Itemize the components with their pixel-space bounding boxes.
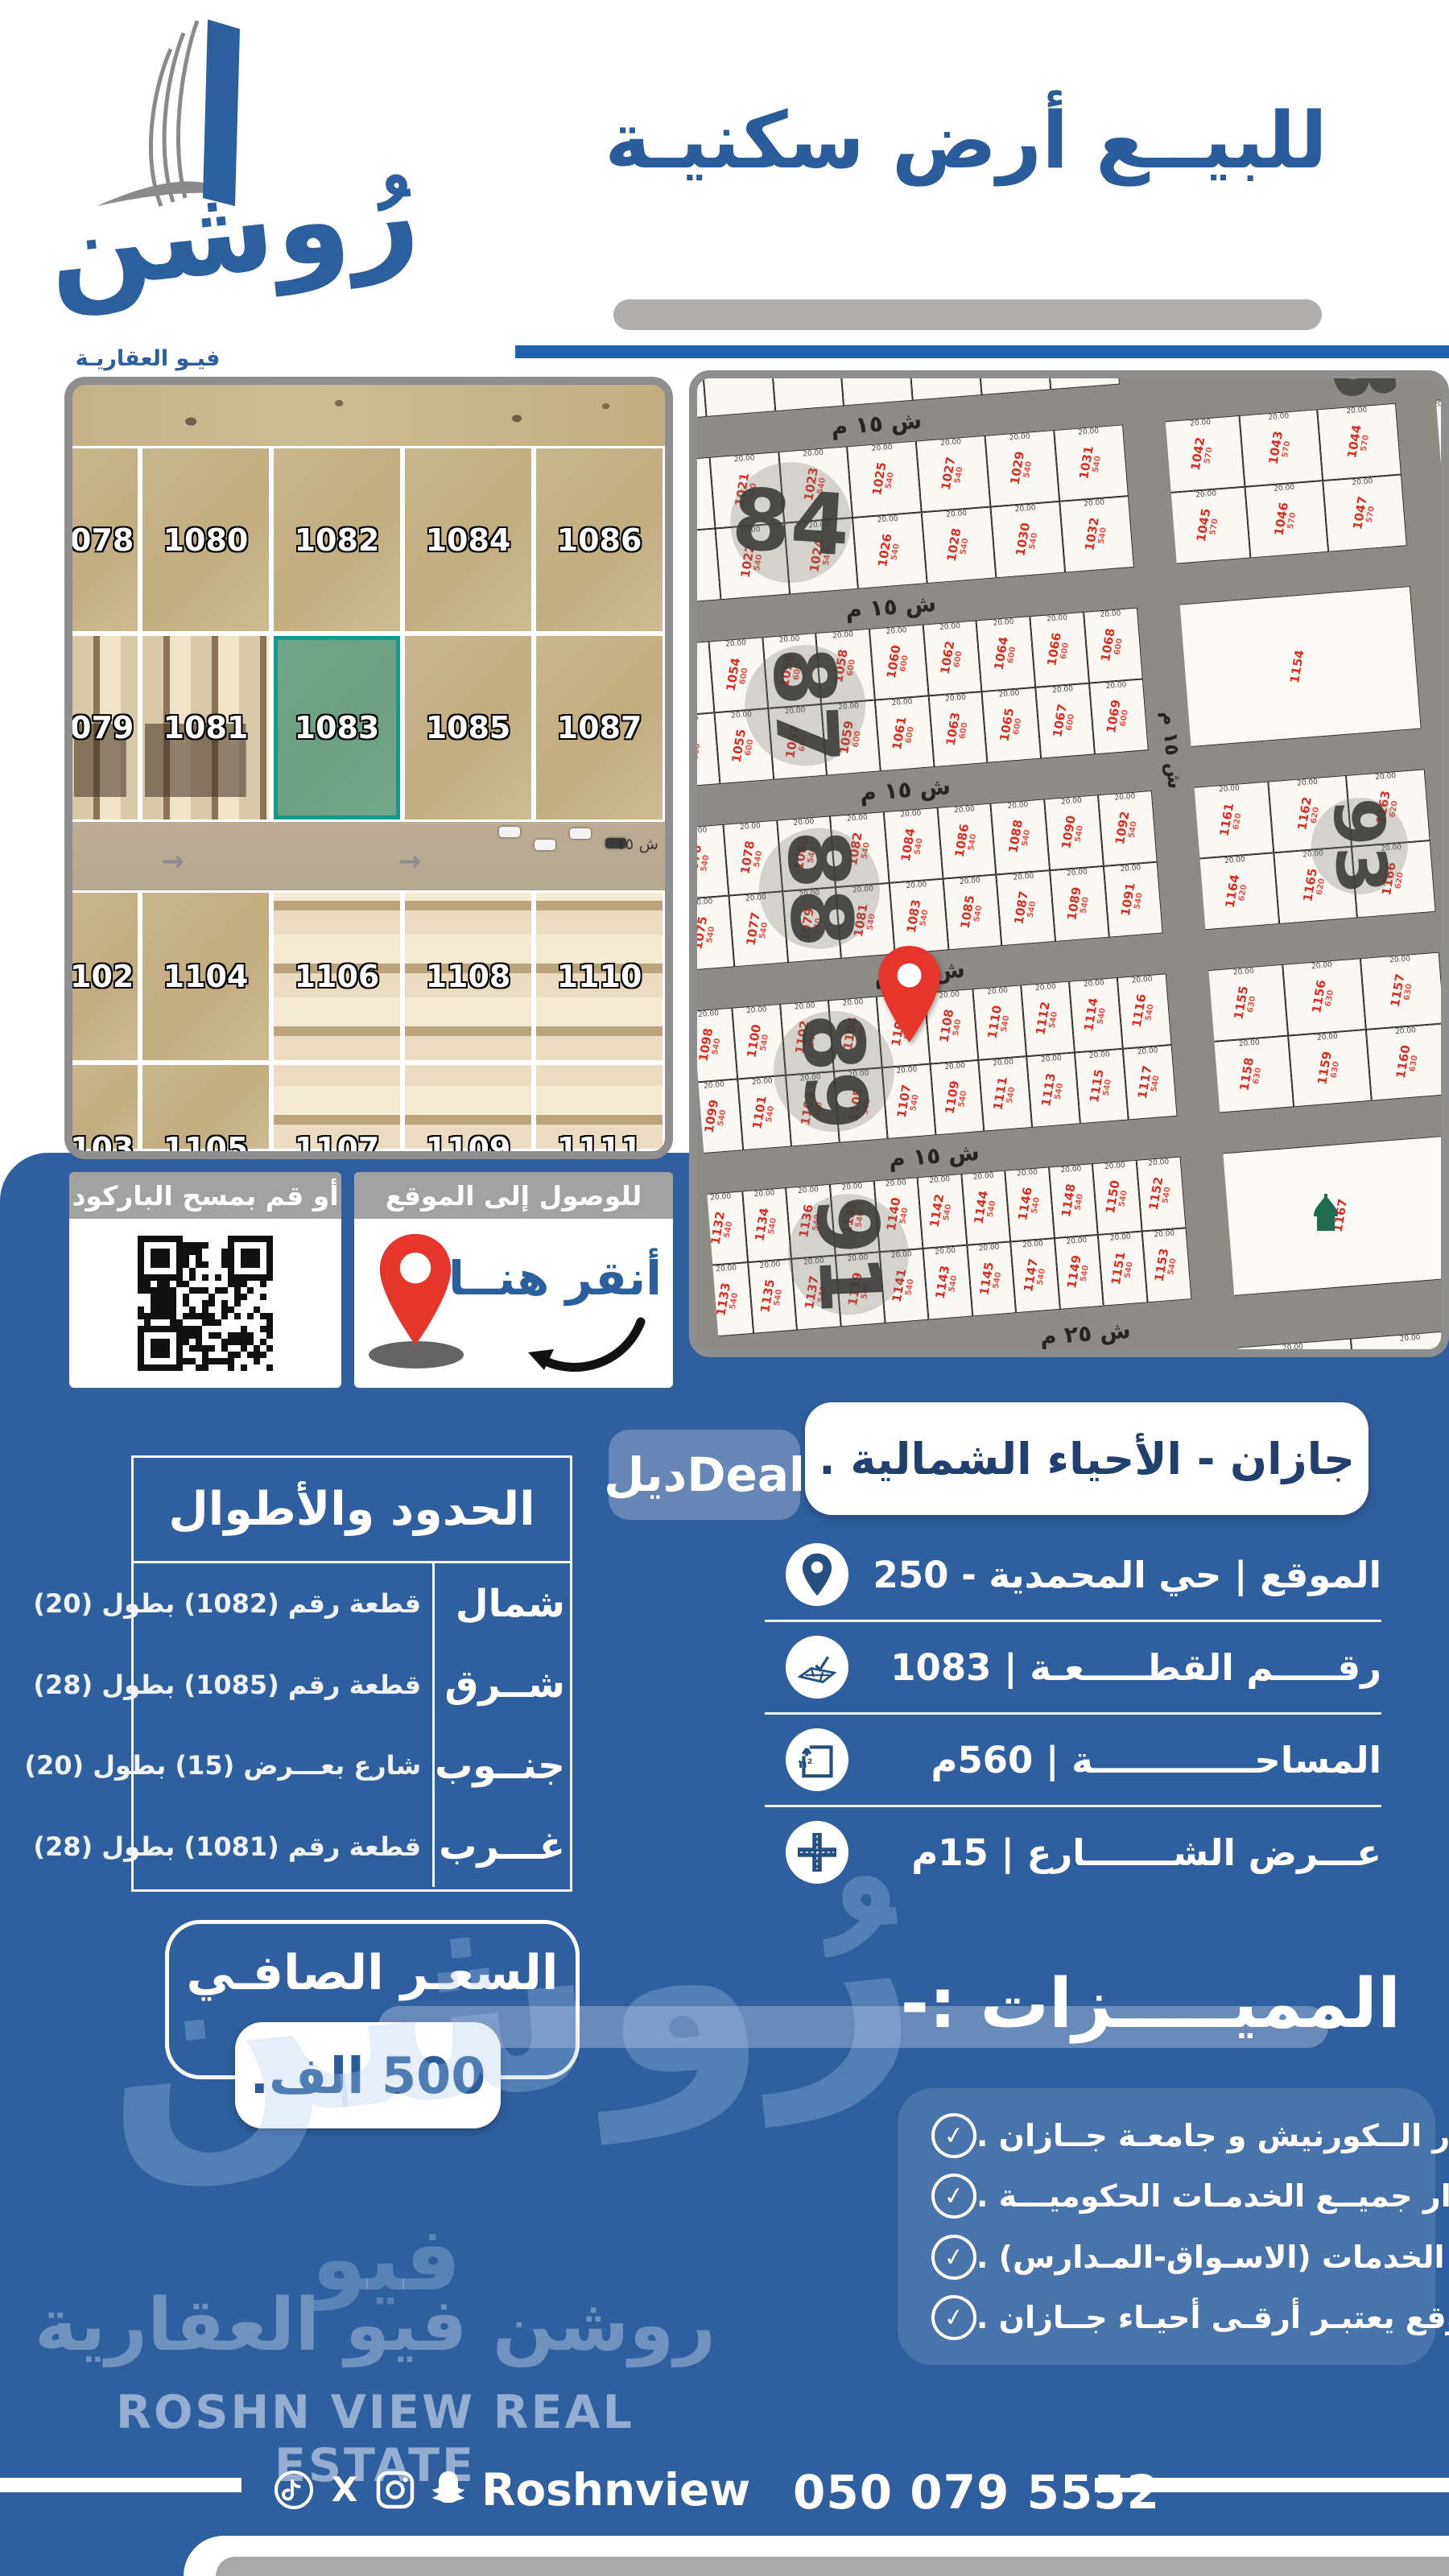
plat-parcel-1030: 20.001030540 (991, 502, 1065, 578)
plat-parcel-1147: 20.001147540 (1011, 1238, 1060, 1313)
plat-parcel-1068: 20.001068600 (1084, 607, 1142, 683)
plat-parcel-1029: 20.001029540 (985, 430, 1059, 506)
parcel-number: 1104 (142, 959, 269, 994)
snapchat-icon[interactable] (428, 2469, 469, 2511)
plat-parcel-1144: 20.001144540 (961, 1170, 1010, 1245)
satellite-parcel-1082: 1082 (271, 446, 402, 634)
satellite-parcel-1086: 1086 (534, 446, 665, 634)
parcel-number: 1082 (274, 522, 400, 558)
plat-parcel-1061: 20.001061600 (875, 696, 934, 771)
plat-parcel-1113: 20.001113540 (1027, 1052, 1081, 1127)
feature-item: ✓الموقع يعتبـر أرقـى أحيـاء جــازان . (919, 2295, 1414, 2340)
social-handle[interactable]: Roshnview (481, 2464, 750, 2516)
logo-subtitle: فيـو العقاريـة (32, 346, 263, 371)
location-card: للوصول إلى الموقع أنقر هنــا (354, 1172, 673, 1388)
satellite-parcel-1107: 1107 (271, 1063, 402, 1150)
features-title: المميـــــزات :- (724, 1964, 1401, 2044)
satellite-parcel-1083: 1083 (271, 634, 402, 821)
plat-parcel-1145: 20.001145540 (967, 1241, 1016, 1316)
detail-row: الموقع | حي المحمدية - 250 (765, 1529, 1381, 1620)
plat-parcel-1157: 20.001157630 (1360, 952, 1444, 1029)
satellite-parcel-1102: 1102 (72, 890, 140, 1063)
parcel-number: 1087 (536, 710, 663, 745)
detail-label: رقـــــم القطـــــعـة | 1083 (848, 1646, 1381, 1689)
brand-logo: رُوشن فيـو العقاريـة (32, 5, 362, 379)
plat-parcel-1089: 20.001089540 (1051, 866, 1109, 942)
car (570, 828, 591, 839)
plat-parcel-1044: 20.001044570 (1318, 402, 1402, 480)
svg-text:m²: m² (799, 1756, 812, 1771)
plat-parcel-1164: 20.001164620 (1195, 852, 1279, 930)
plat-parcel-1110: 20.001110540 (973, 985, 1027, 1059)
parcel-number: 1108 (405, 959, 531, 994)
net-price-label: السعـر الصافـي (169, 1945, 576, 2001)
footer-line-left (0, 2478, 242, 2492)
page-title: للبيــع أرض سكنيـة (588, 95, 1344, 186)
plat-parcel-1066: 20.001066600 (1030, 612, 1089, 687)
boundary-direction: شمال (435, 1563, 570, 1645)
parcel-number: 1106 (274, 959, 400, 994)
plat-parcel-1043: 20.001043570 (1240, 409, 1323, 486)
satellite-parcel-1105: 1105 (140, 1063, 271, 1150)
satellite-parcel-1111: 1111 (534, 1063, 665, 1150)
street-label: ش ٢٥ م (1039, 1316, 1132, 1350)
plat-parcel-1032: 20.001032540 (1059, 496, 1133, 572)
parcel-number: 1079 (64, 710, 138, 745)
plat-parcel-1158: 20.001158630 (1210, 1035, 1294, 1113)
road-arrow-icon: → (398, 845, 422, 877)
road-arrow-icon: → (161, 845, 184, 877)
street-label: ش ١٥ م (830, 407, 923, 440)
plat-parcel-1356: 20.001356475 (1155, 1351, 1205, 1357)
plat-parcel-1065: 20.001065600 (982, 687, 1041, 763)
plat-parcel-1146: 20.001146540 (1005, 1166, 1055, 1241)
plat-parcel-1087: 20.001087540 (997, 870, 1055, 946)
check-icon: ✓ (928, 2292, 979, 2343)
plat-parcel-1134: 20.001134540 (742, 1187, 791, 1262)
boundary-direction: جنــوب (435, 1725, 570, 1806)
title-underline-bar (613, 299, 1322, 330)
right-section: 20.00116162020.00116262020.00116362020.0… (1190, 769, 1435, 930)
parcel-number: 1080 (142, 522, 269, 558)
plat-parcel-1142: 20.001142540 (918, 1174, 967, 1249)
plat-parcel-1062: 20.001062600 (923, 620, 982, 696)
plat-parcel-1045: 20.001045570 (1166, 486, 1250, 563)
boundary-direction: غـــرب (435, 1806, 570, 1888)
plat-parcel-1114: 20.001114540 (1070, 977, 1124, 1052)
footer-strip-gray (216, 2557, 1449, 2576)
feature-text: بجوار جميــع الخدمـات الحكوميـــة . (976, 2178, 1449, 2214)
detail-label: عـــرض الشـــــــارع | 15م (848, 1831, 1381, 1874)
plat-parcel-1111: 20.001111540 (979, 1056, 1033, 1131)
qr-card-title: أو قم بمسح الباركود (69, 1172, 341, 1219)
region-title: جازان - الأحياء الشمالية . (805, 1402, 1368, 1515)
detail-label: الموقع | حي المحمدية - 250 (848, 1554, 1381, 1596)
detail-row: عـــرض الشـــــــارع | 15م (765, 1805, 1381, 1897)
plat-parcel-1067: 20.001067600 (1036, 683, 1095, 758)
boundaries-table: الحدود والأطوال شمالشــرقجنــوبغـــرب قط… (131, 1455, 572, 1892)
plat-parcel-1047: 20.001047570 (1323, 474, 1407, 551)
plat-parcel-1152: 20.001152540 (1137, 1156, 1186, 1231)
plat-parcel-1042: 20.001042570 (1161, 415, 1245, 493)
plat-parcel-1159: 20.001159630 (1288, 1030, 1372, 1107)
parcel-number: 1111 (536, 1131, 663, 1159)
satellite-parcel-1108: 1108 (402, 890, 534, 1063)
property-details: الموقع | حي المحمدية - 250رقـــــم القطـ… (765, 1529, 1381, 1897)
desert-strip (72, 385, 665, 446)
plat-parcel-1086: 20.001086540 (938, 803, 997, 878)
plat-parcel (840, 370, 913, 406)
plat-parcel-1031: 20.001031540 (1054, 424, 1128, 501)
satellite-parcel-1081: 1081 (140, 634, 271, 821)
parcel-number: 1078 (64, 522, 138, 558)
block-number-87: 87 (741, 640, 870, 770)
satellite-parcel-1087: 1087 (534, 634, 665, 821)
detail-row: m²المساحـــــــــــــة | 560م (765, 1712, 1381, 1805)
detail-label: المساحـــــــــــــة | 560م (848, 1739, 1381, 1781)
boundaries-title: الحدود والأطوال (134, 1458, 570, 1563)
plat-parcel-1027: 20.001027540 (916, 436, 990, 512)
block-number-91: 91 (784, 1189, 914, 1319)
plat-parcel-1150: 20.001150540 (1093, 1160, 1142, 1235)
boundary-value: قطعة رقم (1085) بطول (28) (24, 1645, 432, 1726)
plat-parcel-1148: 20.001148540 (1049, 1163, 1098, 1238)
satellite-parcel-1084: 1084 (402, 446, 534, 634)
svg-text:X: X (332, 2471, 358, 2508)
plat-parcel-1075: 20.001075540 (689, 895, 735, 971)
boundary-direction: شــرق (435, 1645, 570, 1726)
features-panel: ✓بجــوار الــكورنيش و جامعـة جــازان .✓ب… (898, 2088, 1435, 2365)
satellite-parcel-1109: 1109 (402, 1063, 534, 1150)
area-icon: m² (786, 1728, 848, 1791)
plat-parcel-1085: 20.001085540 (943, 874, 1002, 950)
street-width-icon (786, 1821, 848, 1884)
logo-calligraphy: رُوشن (41, 155, 382, 310)
parcel-number: 1086 (536, 522, 663, 558)
street-label: ش ١٥ م (1158, 710, 1187, 790)
parcel-number: 1085 (405, 710, 531, 745)
car (499, 827, 520, 837)
deal-app-watermark: ديلDeal (609, 1430, 800, 1520)
plat-parcel-1153: 20.001153540 (1142, 1228, 1191, 1302)
plat-parcel-1064: 20.001064600 (976, 616, 1035, 691)
plat-parcel (771, 370, 844, 411)
parcel-number: 1107 (274, 1131, 400, 1159)
check-icon: ✓ (928, 2231, 979, 2282)
tiktok-icon[interactable] (274, 2470, 314, 2510)
satellite-parcel-1103: 1103 (72, 1063, 140, 1150)
plat-parcel-1028: 20.001028540 (922, 506, 996, 583)
plat-parcel-1026: 20.001026540 (853, 512, 927, 588)
watermark-arabic: روشن فيو العقارية (13, 2283, 737, 2368)
block-number-88: 88 (755, 824, 885, 953)
satellite-parcel-1079: 1079 (72, 634, 140, 821)
plat-parcel-1143: 20.001143540 (923, 1245, 972, 1319)
plat-parcel-1069: 20.001069600 (1089, 679, 1148, 754)
plat-parcel-1155: 20.001155630 (1204, 964, 1288, 1042)
curved-arrow-icon (520, 1314, 649, 1381)
parcel-number: 1084 (405, 522, 531, 558)
header-divider-line (515, 345, 1449, 358)
feature-text: بجــوار الــكورنيش و جامعـة جــازان . (976, 2118, 1449, 2153)
satellite-parcel-1110: 1110 (534, 890, 665, 1063)
satellite-parcel-1085: 1085 (402, 634, 534, 821)
plat-parcel-1063: 20.001063600 (929, 691, 988, 767)
check-icon: ✓ (928, 2111, 979, 2161)
plat-parcel-1352: 20.001352475 (1075, 1356, 1125, 1357)
qr-card: أو قم بمسح الباركود (69, 1172, 341, 1388)
plat-parcel (702, 370, 775, 417)
plat-parcel-1090: 20.001090540 (1045, 795, 1104, 870)
plat-parcel-1149: 20.001149540 (1055, 1235, 1104, 1310)
plat-parcel-1025: 20.001025540 (848, 440, 922, 517)
car (535, 840, 555, 850)
cadastral-map: 83ش ١٥ م20.00101954020.00102154020.00102… (689, 370, 1449, 1357)
feature-text: الموقع يعتبـر أرقـى أحيـاء جــازان . (976, 2300, 1449, 2335)
qr-code[interactable] (138, 1236, 273, 1371)
location-card-title: للوصول إلى الموقع (354, 1172, 673, 1219)
plat-parcel-1151: 20.001151540 (1099, 1231, 1148, 1306)
block-number-84: 84 (726, 457, 856, 587)
plat-parcel-1117: 20.001117540 (1124, 1045, 1178, 1120)
phone-number[interactable]: 050 079 5552 (793, 2465, 1160, 2520)
street-label: ش ١٥ م (844, 590, 937, 624)
plat-parcel-1207: 20.001207 (1440, 580, 1449, 726)
plat-parcel-1060: 20.001060600 (869, 624, 928, 700)
poster-page: رُوشن فيـو العقاريـة للبيــع أرض سكنيـة … (0, 0, 1449, 2576)
parcel-number: 1105 (142, 1131, 269, 1159)
location-pin-icon (786, 1543, 848, 1606)
plat-parcel-1112: 20.001112540 (1022, 980, 1075, 1055)
satellite-map: 1078108010821084108610791081108310851087… (64, 377, 673, 1159)
plot-number-icon (786, 1636, 848, 1699)
x-icon[interactable]: X (327, 2471, 362, 2508)
satellite-parcel-1080: 1080 (140, 446, 271, 634)
parcel-number: 1102 (64, 959, 138, 994)
feature-item: ✓بجوار جميــع الخدمـات الحكوميـــة . (919, 2173, 1414, 2219)
parcel-number: 1081 (142, 710, 269, 745)
parcel-number: 1103 (64, 1131, 138, 1159)
social-row: XRoshnview (274, 2462, 758, 2518)
mosque-icon (1307, 1194, 1344, 1234)
satellite-parcel-1106: 1106 (271, 890, 402, 1063)
feature-item: ✓بجــوار الــكورنيش و جامعـة جــازان . (919, 2113, 1414, 2158)
right-section: 1154 (1175, 586, 1421, 747)
plat-parcel-1084: 20.001084540 (884, 807, 943, 883)
red-pin-icon (377, 1230, 454, 1351)
plat-parcel-1156: 20.001156630 (1282, 958, 1366, 1035)
boundary-value: قطعة رقم (1082) بطول (20) (24, 1563, 432, 1645)
plat-parcel-1116: 20.001116540 (1118, 973, 1172, 1048)
plat-parcel-1091: 20.001091540 (1104, 861, 1162, 937)
plat-parcel-1088: 20.001088540 (991, 799, 1050, 874)
plat-parcel-1092: 20.001092540 (1098, 791, 1157, 866)
plat-parcel-1161: 20.001161620 (1190, 781, 1274, 858)
block-number-93: 93 (1308, 794, 1412, 898)
plat-parcel-1076: 20.001076540 (689, 824, 729, 900)
boundary-value: شارع بعـــرض (15) بطول (20) (24, 1725, 432, 1806)
large-parcel-1154: 1154 (1175, 586, 1421, 747)
satellite-parcel-1078: 1078 (72, 446, 140, 634)
plat-parcel-1115: 20.001115540 (1075, 1048, 1129, 1123)
plat-parcel-1046: 20.001046570 (1245, 481, 1329, 558)
plat-parcel-1354: 20.001354475 (1116, 1353, 1166, 1357)
map-location-pin-icon (876, 888, 943, 1101)
right-section: 20.00115563020.00115663020.00115763020.0… (1204, 952, 1449, 1113)
click-here-link[interactable]: أنقر هنــا (448, 1251, 662, 1306)
feature-item: ✓بجوار الخدمات (الاسـواق-المـدارس) . (919, 2235, 1414, 2280)
road-strip: →→ش ١٥ (72, 822, 665, 891)
right-section: 20.00104257020.00104357020.00104457020.0… (1161, 402, 1406, 563)
feature-text: بجوار الخدمات (الاسـواق-المـدارس) . (976, 2240, 1449, 2275)
detail-row: رقـــــم القطـــــعـة | 1083 (765, 1620, 1381, 1712)
check-icon: ✓ (928, 2171, 979, 2222)
street-label: ش ١٥ م (888, 1138, 980, 1172)
satellite-parcel-1104: 1104 (140, 890, 271, 1063)
street-label: ش ١٥ م (859, 773, 952, 807)
plat-parcel-1160: 20.001160630 (1366, 1023, 1449, 1100)
parcel-number: 1083 (274, 710, 400, 745)
instagram-icon[interactable] (375, 2470, 415, 2510)
parcel-number: 1109 (405, 1131, 531, 1159)
boundary-value: قطعة رقم (1081) بطول (28) (24, 1806, 432, 1888)
parcel-number: 1110 (536, 959, 663, 994)
road-label: ش ١٥ (617, 834, 658, 853)
